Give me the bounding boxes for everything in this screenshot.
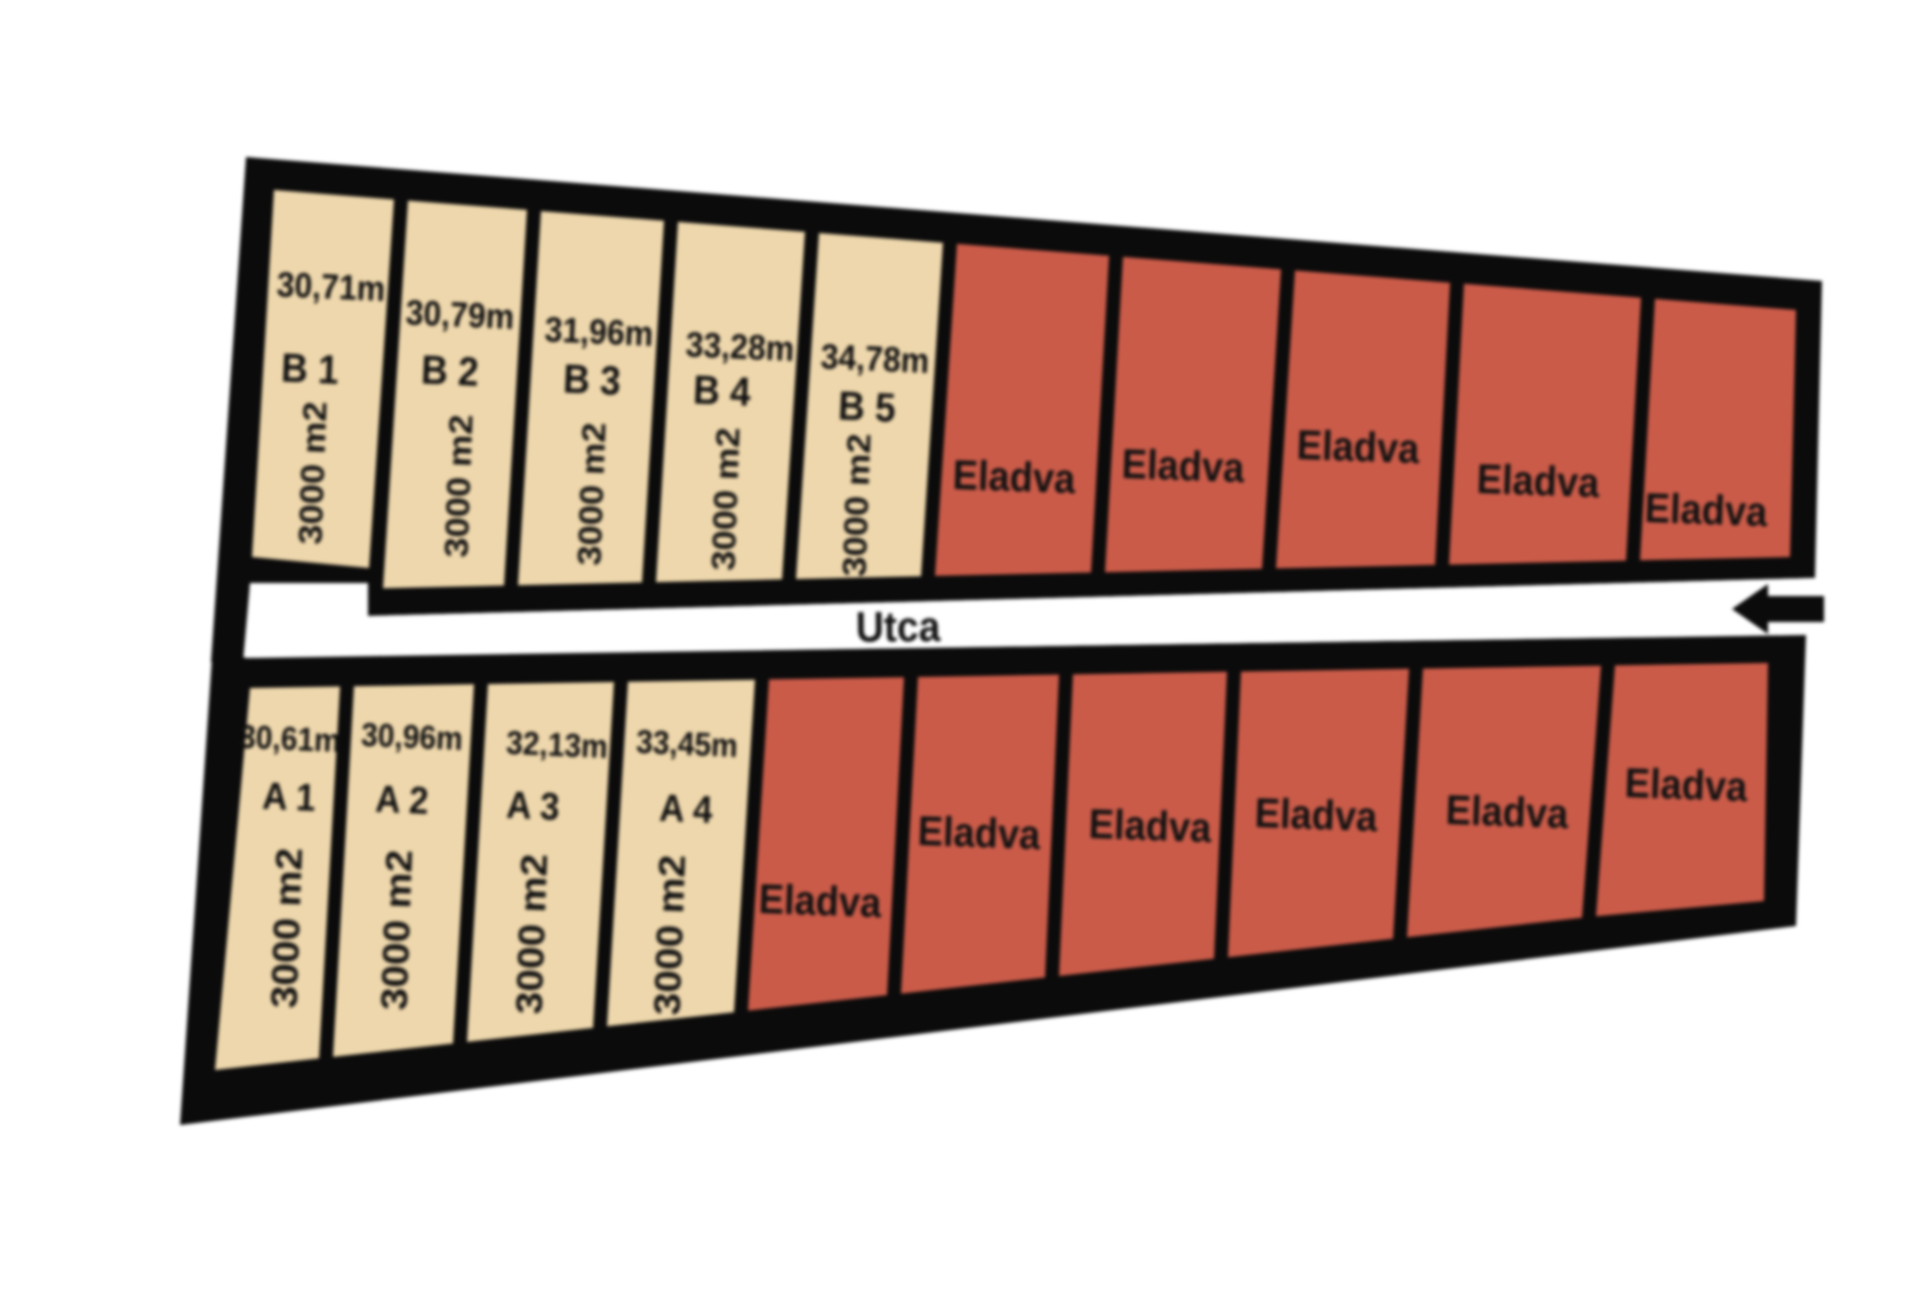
svg-text:34,78m: 34,78m bbox=[820, 338, 930, 381]
svg-text:A 1: A 1 bbox=[261, 774, 316, 819]
svg-text:Eladva: Eladva bbox=[917, 808, 1042, 858]
svg-text:Eladva: Eladva bbox=[952, 452, 1077, 502]
svg-text:30,96m: 30,96m bbox=[360, 715, 463, 757]
svg-text:3000 m2: 3000 m2 bbox=[439, 414, 480, 558]
svg-text:Utca: Utca bbox=[856, 602, 942, 651]
svg-text:Eladva: Eladva bbox=[1445, 787, 1570, 837]
svg-text:A 2: A 2 bbox=[374, 777, 429, 822]
svg-text:3000 m2: 3000 m2 bbox=[647, 854, 693, 1016]
svg-text:Eladva: Eladva bbox=[1088, 801, 1213, 851]
svg-text:Eladva: Eladva bbox=[758, 876, 883, 926]
svg-text:30,79m: 30,79m bbox=[405, 294, 515, 337]
svg-text:A 4: A 4 bbox=[658, 786, 713, 831]
svg-text:31,96m: 31,96m bbox=[544, 311, 654, 354]
svg-text:Eladva: Eladva bbox=[1121, 441, 1246, 491]
svg-text:B 2: B 2 bbox=[420, 348, 479, 395]
svg-text:32,13m: 32,13m bbox=[505, 723, 608, 765]
svg-text:Eladva: Eladva bbox=[1624, 760, 1749, 810]
svg-text:Eladva: Eladva bbox=[1644, 485, 1769, 535]
svg-text:3000 m2: 3000 m2 bbox=[706, 427, 747, 571]
svg-text:A 3: A 3 bbox=[505, 783, 560, 828]
svg-text:Eladva: Eladva bbox=[1476, 456, 1601, 506]
svg-text:3000 m2: 3000 m2 bbox=[293, 401, 334, 545]
svg-text:30,61m: 30,61m bbox=[238, 717, 341, 759]
svg-text:3000 m2: 3000 m2 bbox=[837, 433, 878, 577]
svg-text:3000 m2: 3000 m2 bbox=[509, 853, 555, 1015]
svg-text:Eladva: Eladva bbox=[1296, 422, 1421, 472]
svg-text:B 4: B 4 bbox=[692, 368, 752, 415]
svg-text:3000 m2: 3000 m2 bbox=[572, 422, 613, 566]
svg-text:B 5: B 5 bbox=[837, 384, 896, 431]
svg-text:3000 m2: 3000 m2 bbox=[264, 847, 310, 1009]
svg-text:Eladva: Eladva bbox=[1254, 790, 1379, 840]
svg-text:B 1: B 1 bbox=[280, 346, 339, 393]
svg-text:B 3: B 3 bbox=[562, 357, 621, 404]
svg-text:3000 m2: 3000 m2 bbox=[374, 849, 420, 1011]
svg-text:30,71m: 30,71m bbox=[276, 266, 386, 309]
svg-text:33,45m: 33,45m bbox=[635, 722, 738, 764]
svg-text:33,28m: 33,28m bbox=[685, 326, 795, 369]
